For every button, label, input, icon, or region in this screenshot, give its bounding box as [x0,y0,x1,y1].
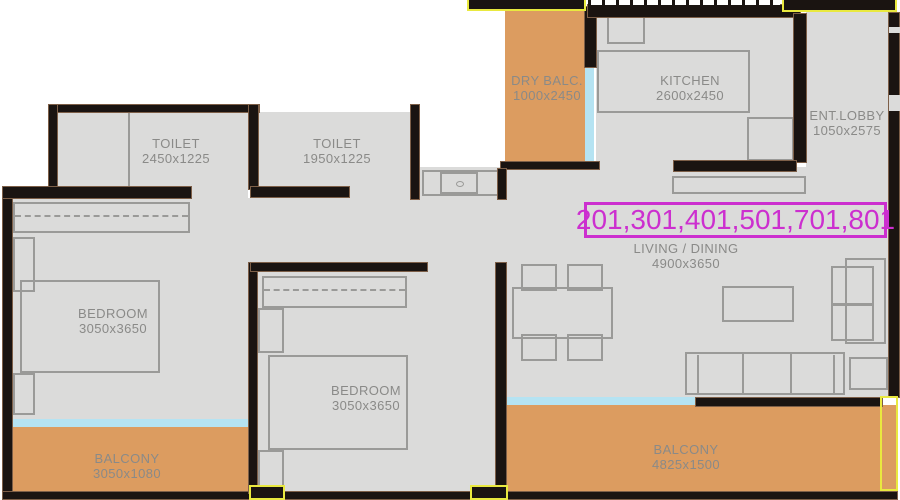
room-dims: 4825x1500 [652,457,720,472]
wall-bedrooms-divider [248,262,258,494]
room-label-ent-lobby: ENT.LOBBY 1050x2575 [809,108,884,138]
room-dims: 2450x1225 [142,151,210,166]
room-name: BALCONY [93,451,161,466]
wall-living-bottom [695,397,883,407]
room-label-dry-balcony: DRY BALC. 1000x2450 [511,73,583,103]
wardrobe [262,276,407,308]
wardrobe-dashed-line [15,215,188,217]
room-name: LIVING / DINING [634,241,739,256]
wall-passage-stub [497,168,507,200]
room-dims: 1050x2575 [809,123,884,138]
sofa-arm-line [833,355,835,393]
wall-toilet2-bottom [250,186,350,198]
living-window-glass [507,397,695,405]
toilet2-door-opening [350,186,410,200]
sofa [685,352,845,395]
wall-outer-bottom [2,491,898,500]
wall-toilet1-bottom [2,186,192,199]
room-label-bedroom1: BEDROOM 3050x3650 [78,306,148,336]
sofa-cushion-line [742,354,744,394]
room-dims: 4900x3650 [634,256,739,271]
flat-numbers-box: 201,301,401,501,701,801 [584,202,887,238]
flat-numbers-text: 201,301,401,501,701,801 [576,204,895,236]
nightstand [13,373,35,415]
highlight-wall-top-left [467,0,586,11]
room-name: BEDROOM [78,306,148,321]
room-label-toilet1: TOILET 2450x1225 [142,136,210,166]
highlight-box-right [880,396,898,491]
room-name: KITCHEN [656,73,724,88]
wall-kitchen-bottom [673,160,797,172]
armchair-seat [831,304,874,341]
room-name: BALCONY [652,442,720,457]
wall-kitchen-lobby [793,13,807,163]
room-dims: 3050x3650 [78,321,148,336]
wall-toilet1-top [48,104,260,113]
wall-toilet2-right [410,104,420,200]
highlight-marker-bottom-left [249,485,285,500]
room-label-balcony2: BALCONY 4825x1500 [652,442,720,472]
wall-drybalc-bottom [500,161,600,170]
room-dims: 3050x3650 [331,398,401,413]
floor-plan: TOILET 2450x1225 TOILET 1950x1225 DRY BA… [0,0,900,500]
wall-notch [889,95,900,111]
room-name: TOILET [142,136,210,151]
armchair-seat [831,266,874,305]
wardrobe-dashed-line [264,289,405,291]
wall-bedroom2-right [495,262,507,491]
dresser [258,308,284,353]
wall-toilet1-left [48,104,58,192]
coffee-table [722,286,794,322]
sofa-cushion-line [790,354,792,394]
dining-table [512,287,613,339]
side-table [849,357,888,390]
kitchen-window-glass [585,66,594,162]
room-name: TOILET [303,136,371,151]
sofa-arm-line [697,355,699,393]
wall-notch [889,27,900,33]
wall-outer-left [2,186,13,500]
room-dims: 3050x1080 [93,466,161,481]
room-label-bedroom2: BEDROOM 3050x3650 [331,383,401,413]
room-name: ENT.LOBBY [809,108,884,123]
crockery-counter [672,176,806,194]
room-label-toilet2: TOILET 1950x1225 [303,136,371,166]
room-dims: 1950x1225 [303,151,371,166]
wardrobe [13,202,190,233]
highlight-wall-top-right [782,0,897,12]
room-label-balcony1: BALCONY 3050x1080 [93,451,161,481]
toilet1-partition-line [128,112,130,188]
bedroom1-window-glass [13,419,248,427]
wall-bedroom2-top [250,262,428,272]
room-name: DRY BALC. [511,73,583,88]
stair-hatch-strip [588,0,780,5]
kitchen-platform [747,117,794,161]
room-label-living-dining: LIVING / DINING 4900x3650 [634,241,739,271]
toilet1-door-opening [192,186,248,200]
room-name: BEDROOM [331,383,401,398]
room-dims: 2600x2450 [656,88,724,103]
wall-toilets-divider [248,104,259,190]
room-label-kitchen: KITCHEN 2600x2450 [656,73,724,103]
wall-kitchen-top [587,4,801,18]
washbasin-drain [456,181,464,187]
room-dims: 1000x2450 [511,88,583,103]
kitchen-appliance [607,14,645,44]
highlight-marker-bottom-mid [470,485,508,500]
nightstand [258,450,284,490]
